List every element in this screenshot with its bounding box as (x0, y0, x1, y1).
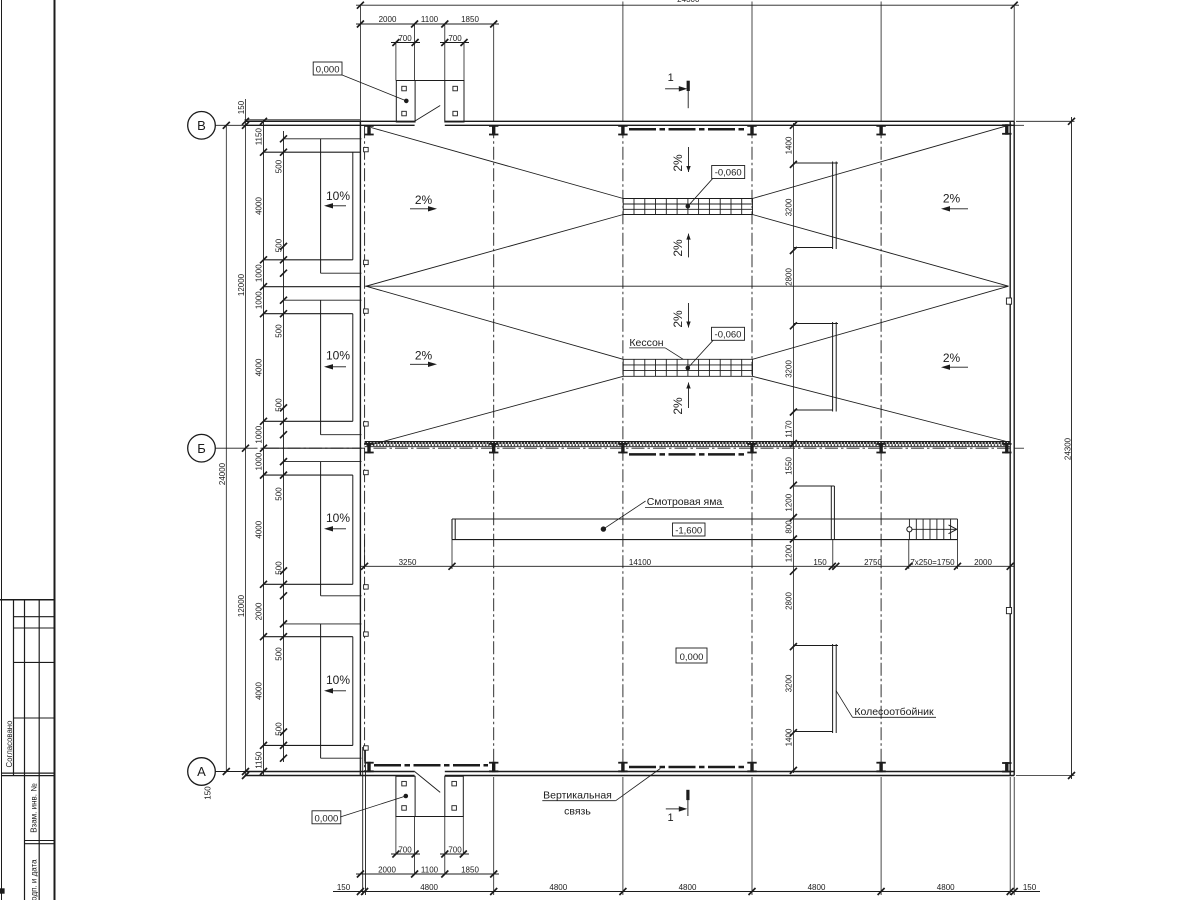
svg-text:1150: 1150 (255, 128, 264, 146)
svg-text:500: 500 (275, 324, 284, 338)
svg-text:2800: 2800 (785, 592, 794, 610)
svg-text:12000: 12000 (237, 594, 246, 617)
svg-text:500: 500 (275, 238, 284, 252)
svg-text:150: 150 (204, 786, 213, 800)
svg-text:4800: 4800 (679, 883, 697, 892)
svg-text:4800: 4800 (808, 883, 826, 892)
svg-text:1400: 1400 (785, 136, 794, 154)
svg-text:4000: 4000 (255, 682, 264, 700)
svg-text:связь: связь (564, 805, 591, 817)
svg-text:-0,060: -0,060 (715, 329, 742, 340)
svg-text:7x250=1750: 7x250=1750 (910, 558, 955, 567)
svg-text:2%: 2% (415, 193, 433, 207)
svg-text:1850: 1850 (461, 865, 479, 874)
svg-text:2750: 2750 (864, 558, 882, 567)
svg-text:24300: 24300 (677, 0, 700, 4)
svg-text:1100: 1100 (421, 865, 439, 874)
svg-text:1550: 1550 (785, 457, 794, 475)
svg-text:Согласовано: Согласовано (5, 720, 14, 768)
svg-text:2000: 2000 (255, 602, 264, 620)
svg-text:-1,600: -1,600 (675, 525, 702, 536)
svg-text:Кессон: Кессон (629, 337, 663, 349)
svg-text:150: 150 (813, 558, 827, 567)
svg-text:В: В (197, 118, 206, 133)
svg-text:1: 1 (668, 72, 674, 84)
svg-text:150: 150 (237, 100, 246, 114)
svg-text:1850: 1850 (461, 15, 479, 24)
svg-text:Колесоотбойник: Колесоотбойник (854, 706, 934, 718)
svg-text:2%: 2% (671, 310, 685, 328)
svg-text:-0,060: -0,060 (715, 168, 742, 179)
svg-text:500: 500 (275, 398, 284, 412)
svg-text:1400: 1400 (785, 728, 794, 746)
svg-text:Подп. и дата: Подп. и дата (30, 859, 39, 900)
svg-text:14100: 14100 (629, 558, 652, 567)
svg-text:4800: 4800 (549, 883, 567, 892)
svg-text:500: 500 (275, 722, 284, 736)
svg-text:2%: 2% (943, 351, 961, 365)
svg-text:2800: 2800 (785, 268, 794, 286)
svg-text:24000: 24000 (218, 462, 227, 485)
svg-text:2%: 2% (943, 191, 961, 205)
svg-text:1000: 1000 (255, 264, 264, 282)
svg-text:А: А (197, 764, 206, 779)
svg-text:500: 500 (275, 647, 284, 661)
svg-text:0,000: 0,000 (680, 652, 704, 663)
svg-text:1000: 1000 (255, 452, 264, 470)
svg-text:1100: 1100 (421, 15, 439, 24)
svg-text:1000: 1000 (255, 425, 264, 443)
svg-text:Взам. инв. №: Взам. инв. № (30, 783, 39, 833)
svg-text:3200: 3200 (785, 674, 794, 692)
svg-text:1200: 1200 (785, 493, 794, 511)
svg-text:4800: 4800 (420, 883, 438, 892)
svg-text:500: 500 (275, 561, 284, 575)
svg-text:2000: 2000 (974, 558, 992, 567)
svg-text:24300: 24300 (1063, 437, 1072, 460)
svg-text:0,000: 0,000 (315, 813, 339, 824)
svg-text:3200: 3200 (785, 360, 794, 378)
svg-text:4000: 4000 (255, 358, 264, 376)
svg-text:2%: 2% (671, 154, 685, 172)
svg-text:2%: 2% (671, 397, 685, 415)
svg-text:500: 500 (275, 159, 284, 173)
svg-text:10%: 10% (326, 189, 350, 203)
svg-text:800: 800 (785, 520, 794, 534)
svg-text:1: 1 (668, 812, 674, 824)
svg-text:10%: 10% (326, 673, 350, 687)
svg-text:3200: 3200 (785, 198, 794, 216)
svg-text:2000: 2000 (379, 15, 397, 24)
svg-text:1200: 1200 (785, 544, 794, 562)
svg-text:1000: 1000 (255, 291, 264, 309)
svg-text:4000: 4000 (255, 520, 264, 538)
svg-text:Б: Б (197, 441, 206, 456)
svg-text:10%: 10% (326, 349, 350, 363)
svg-text:700: 700 (448, 845, 462, 854)
svg-text:700: 700 (398, 34, 412, 43)
svg-text:4800: 4800 (937, 883, 955, 892)
svg-text:3250: 3250 (399, 558, 417, 567)
svg-text:2%: 2% (671, 239, 685, 257)
svg-text:700: 700 (398, 845, 412, 854)
svg-text:150: 150 (337, 883, 351, 892)
svg-text:2000: 2000 (378, 865, 396, 874)
svg-text:2%: 2% (415, 349, 433, 363)
svg-text:700: 700 (448, 34, 462, 43)
svg-text:150: 150 (1023, 883, 1037, 892)
svg-text:10%: 10% (326, 511, 350, 525)
svg-text:Смотровая яма: Смотровая яма (647, 496, 723, 508)
svg-text:1150: 1150 (255, 751, 264, 769)
svg-text:Вертикальная: Вертикальная (543, 789, 612, 801)
svg-text:4000: 4000 (255, 197, 264, 215)
svg-text:0,000: 0,000 (316, 65, 340, 76)
svg-text:12000: 12000 (237, 273, 246, 296)
svg-text:1170: 1170 (785, 420, 794, 438)
svg-text:500: 500 (275, 487, 284, 501)
